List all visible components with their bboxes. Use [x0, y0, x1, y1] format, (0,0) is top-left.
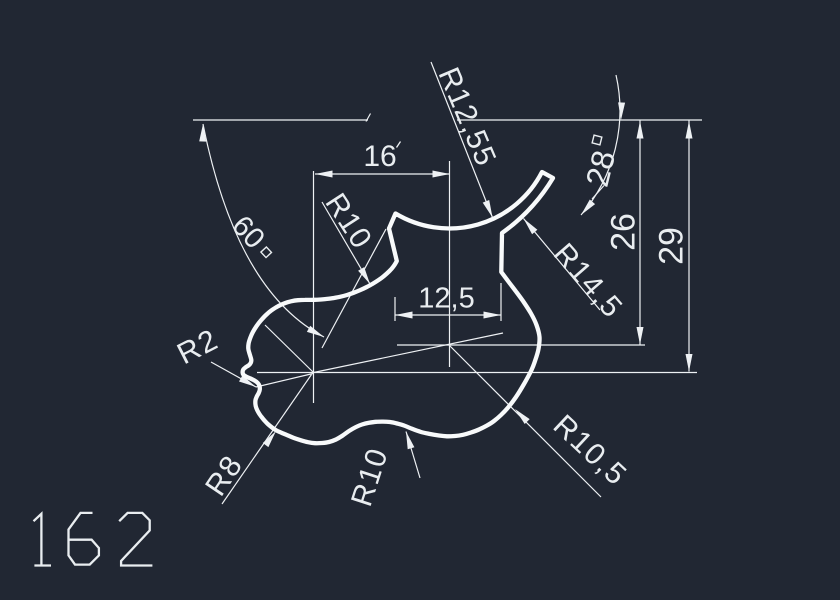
- svg-text:16: 16: [363, 140, 396, 173]
- svg-text:12,5: 12,5: [418, 283, 474, 315]
- svg-text:29: 29: [653, 227, 691, 265]
- svg-text:26: 26: [605, 213, 643, 251]
